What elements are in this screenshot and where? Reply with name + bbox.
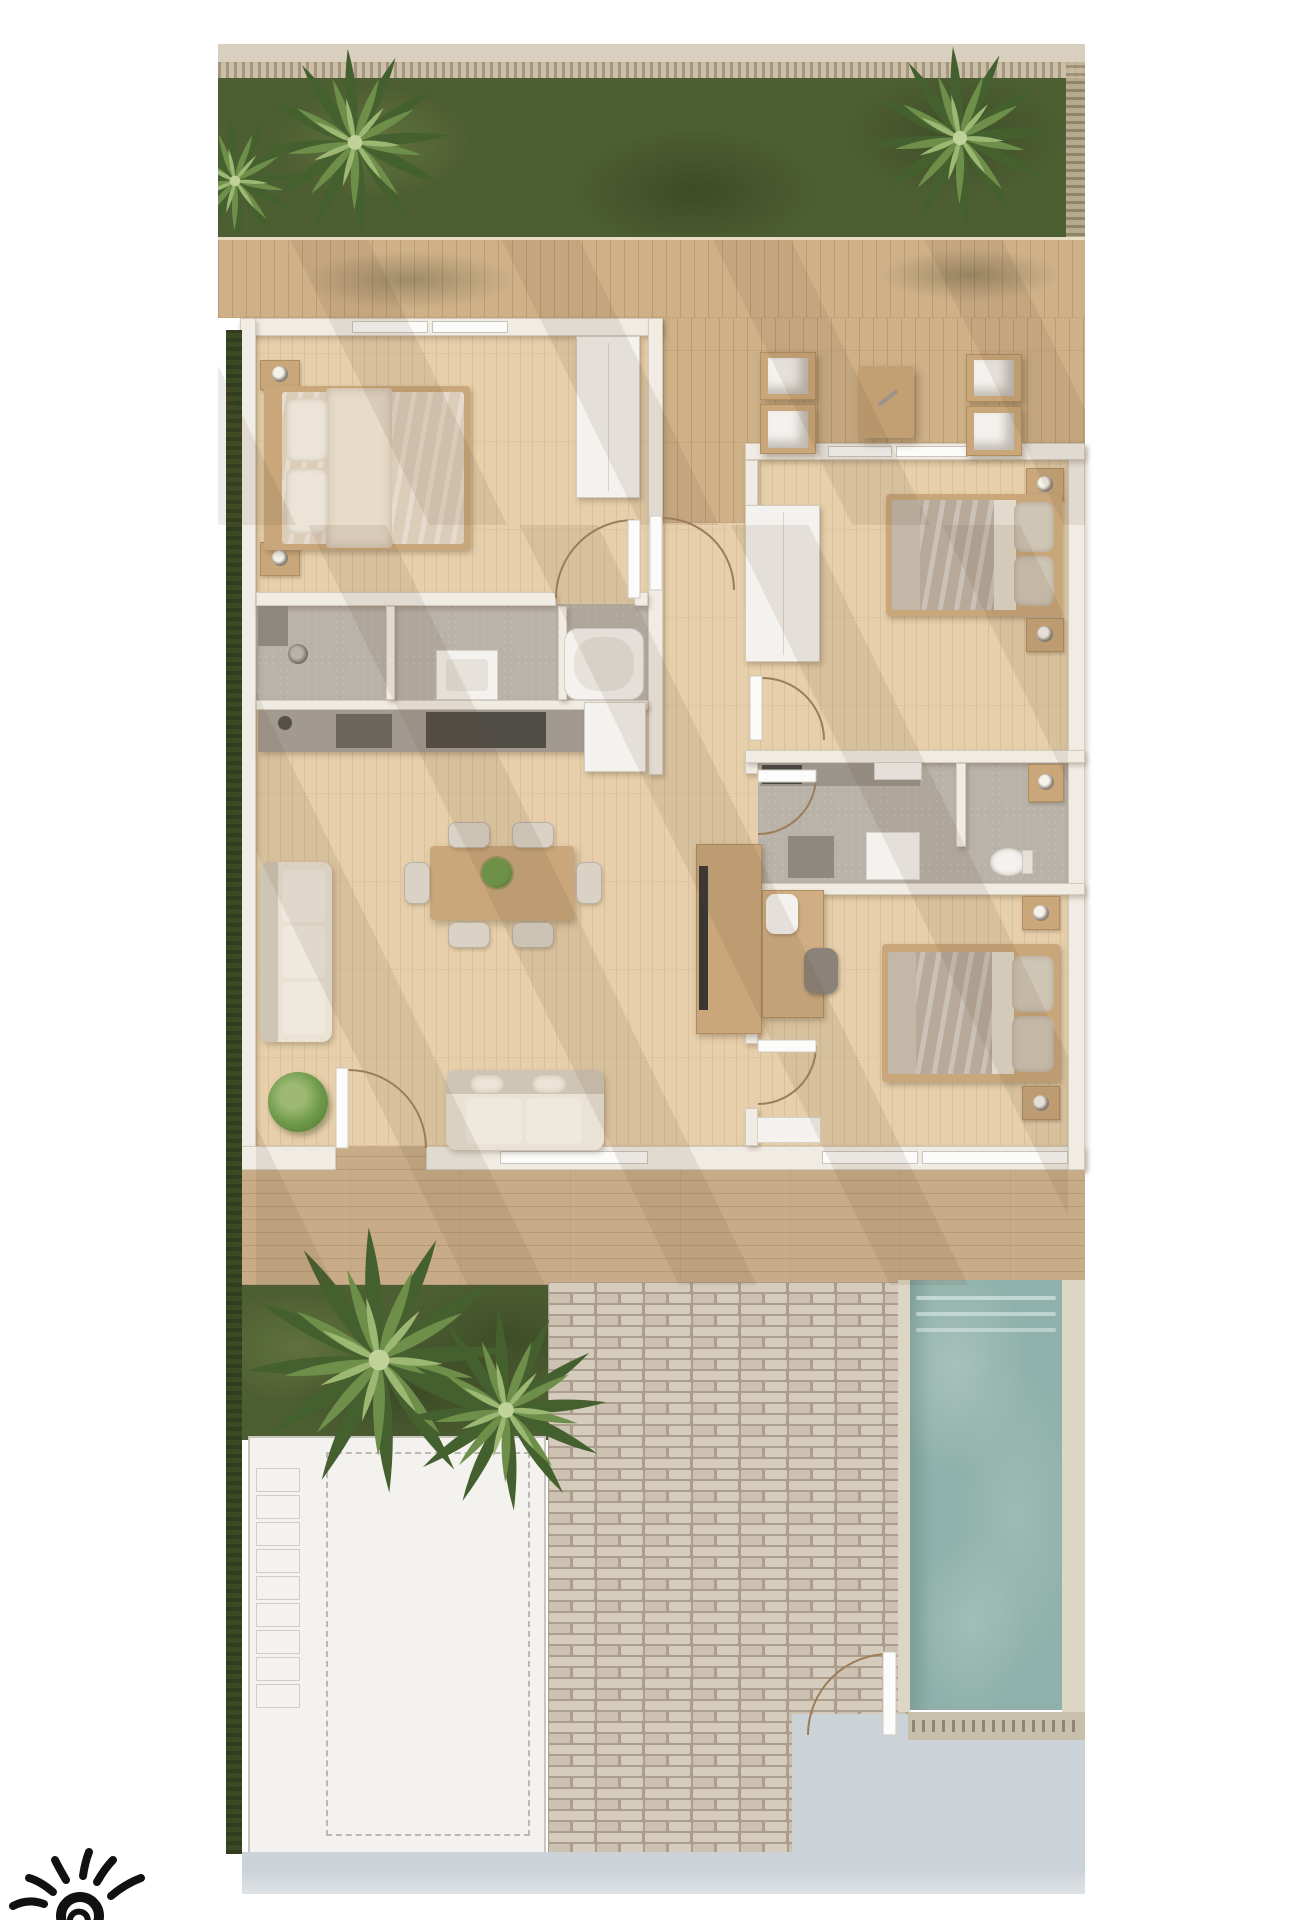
door-leaf-terrace	[650, 516, 662, 590]
door-leaf-bedroom3	[758, 1040, 816, 1052]
sun-ray	[97, 1860, 113, 1882]
door-arc-bedroom3	[758, 1046, 816, 1104]
door-arc-entry	[348, 1070, 426, 1148]
sun-ring	[61, 1897, 99, 1920]
door-leaf-bathroom2	[758, 770, 816, 782]
sun-logo	[0, 1840, 200, 1920]
sun-ray	[55, 1860, 66, 1880]
door-arc-master	[556, 520, 634, 598]
sun-ray	[29, 1878, 53, 1892]
door-leaf-entry	[336, 1068, 348, 1148]
door-arc-terrace	[662, 518, 734, 590]
door-leaf-master	[628, 520, 640, 598]
door-leaf-gate	[883, 1652, 896, 1735]
door-arc-gate	[808, 1654, 889, 1735]
sun-ray	[83, 1852, 89, 1876]
sun-ray	[111, 1878, 141, 1896]
floor-plan-page	[0, 0, 1307, 1920]
sun-spiral	[70, 1912, 88, 1920]
door-arc-bedroom2	[762, 678, 824, 740]
door-leaf-bedroom2	[750, 676, 762, 740]
sun-ray	[13, 1901, 44, 1906]
door-swing-layer	[0, 0, 1307, 1920]
door-arc-bathroom2	[758, 776, 816, 834]
